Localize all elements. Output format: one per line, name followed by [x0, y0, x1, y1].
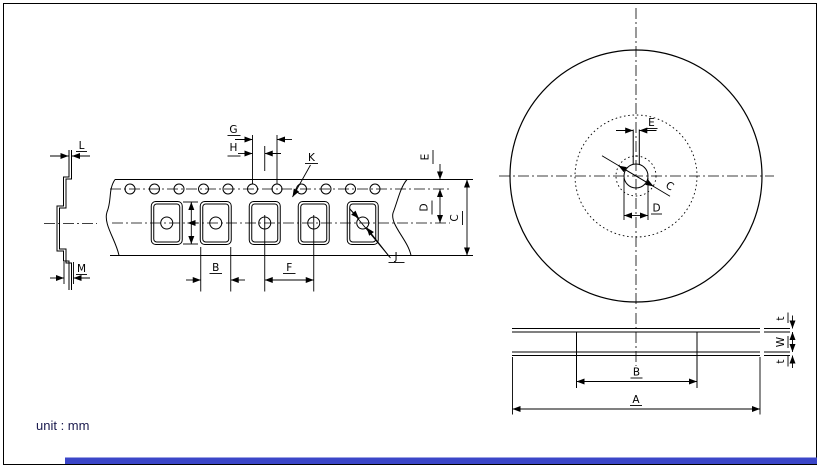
- dim-label-C: C: [449, 214, 461, 221]
- reel-flanges: [512, 329, 790, 356]
- drawing-frame: [4, 4, 817, 465]
- unit-note: unit : mm: [36, 418, 89, 433]
- dim-J-leader: J: [350, 209, 405, 264]
- dim-label-E: E: [420, 154, 432, 161]
- dim-reel-D: D: [624, 178, 662, 220]
- dim-D: D: [419, 189, 441, 223]
- dim-label-reel-D: D: [652, 203, 660, 215]
- tape-torn-edge-left: [106, 180, 119, 256]
- dim-B: B: [186, 247, 245, 292]
- dim-reel-E: E: [616, 117, 658, 131]
- dim-M: M: [50, 262, 90, 284]
- dim-L: L: [50, 140, 90, 156]
- dim-C: C: [449, 180, 467, 256]
- dim-label-reel-t-top: t: [775, 316, 787, 320]
- reel-side-view: B A t W t: [512, 313, 793, 415]
- dim-reel-W: W: [775, 332, 793, 352]
- dim-label-reel-B: B: [633, 367, 640, 379]
- dim-label-J: J: [393, 251, 397, 263]
- dim-reel-t-bottom: t: [775, 356, 793, 369]
- dim-label-reel-E: E: [648, 117, 655, 129]
- dim-label-M: M: [77, 263, 86, 275]
- reel-front-view: E C D: [499, 8, 774, 310]
- dim-label-reel-A: A: [632, 394, 640, 406]
- dim-label-B: B: [212, 262, 219, 274]
- dim-K-leader: K: [293, 152, 319, 197]
- dim-label-reel-C: C: [663, 179, 675, 193]
- dim-label-K: K: [308, 152, 316, 164]
- dim-label-reel-t-bottom: t: [775, 359, 787, 363]
- dim-label-D: D: [419, 203, 431, 211]
- reel-hub: [577, 332, 698, 388]
- dim-label-L: L: [79, 140, 85, 152]
- carrier-tape-view: G H K B: [106, 124, 473, 292]
- tape-section-view: L M: [44, 140, 97, 290]
- dim-reel-B: B: [577, 367, 698, 382]
- technical-drawing: L M: [0, 0, 821, 468]
- dim-label-F: F: [286, 262, 292, 274]
- dim-G: G: [228, 124, 293, 184]
- tape-torn-edge-right: [393, 180, 411, 256]
- drawing-canvas: L M: [0, 0, 821, 468]
- dim-label-G: G: [229, 124, 237, 136]
- dim-H: H: [228, 142, 282, 171]
- bottom-accent-bar: [65, 458, 817, 465]
- dim-label-reel-W: W: [775, 336, 787, 347]
- dim-reel-t-top: t: [775, 313, 793, 329]
- dim-F: F: [265, 215, 314, 292]
- dim-label-H: H: [230, 142, 238, 154]
- dim-pocket-length: [183, 202, 198, 244]
- dim-E: E: [420, 150, 441, 180]
